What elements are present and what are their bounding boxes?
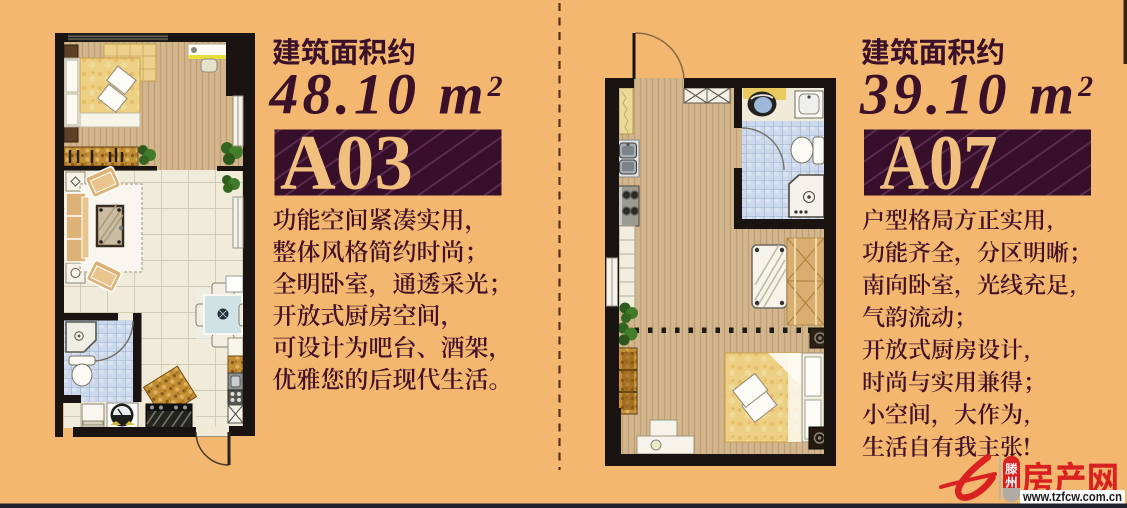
svg-text:A03: A03 [280,119,413,206]
svg-text:www.tzfcw.com.cn: www.tzfcw.com.cn [1022,490,1122,504]
svg-text:48.10 m2: 48.10 m2 [269,62,507,127]
svg-text:39.10 m2: 39.10 m2 [859,62,1097,127]
svg-text:A07: A07 [880,119,998,206]
